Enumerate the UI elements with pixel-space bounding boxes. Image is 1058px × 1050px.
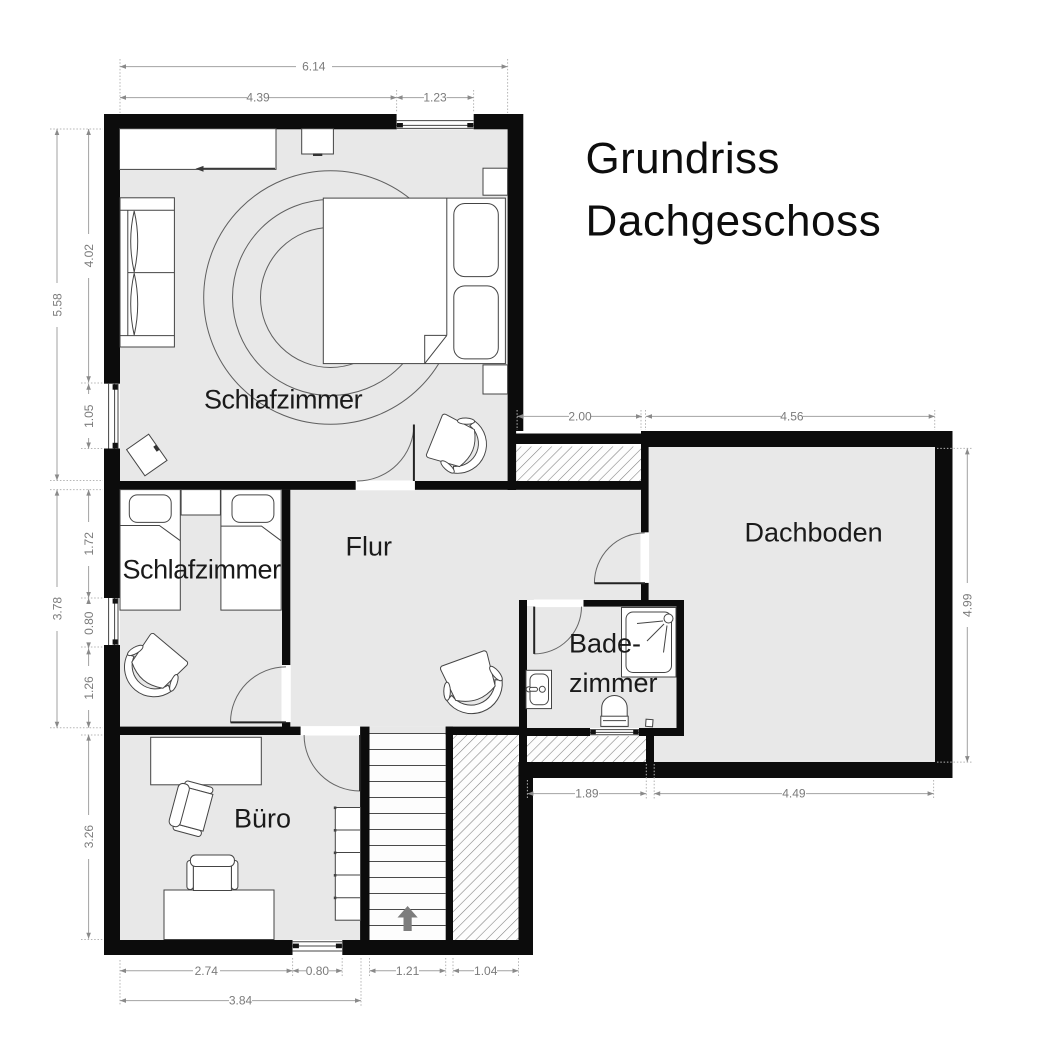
svg-text:Flur: Flur: [346, 532, 393, 562]
svg-text:4.56: 4.56: [780, 409, 804, 423]
svg-text:4.49: 4.49: [782, 787, 806, 801]
svg-text:3.26: 3.26: [82, 825, 96, 849]
svg-text:1.72: 1.72: [82, 532, 96, 556]
svg-text:zimmer: zimmer: [569, 668, 658, 698]
svg-text:1.04: 1.04: [474, 964, 498, 978]
svg-text:1.26: 1.26: [82, 676, 96, 700]
svg-text:5.58: 5.58: [50, 293, 64, 317]
svg-text:Dachgeschoss: Dachgeschoss: [586, 196, 882, 245]
svg-text:4.02: 4.02: [82, 244, 96, 268]
svg-text:3.84: 3.84: [229, 994, 253, 1008]
svg-text:4.99: 4.99: [961, 593, 975, 617]
svg-text:Grundriss: Grundriss: [586, 134, 780, 183]
svg-text:Dachboden: Dachboden: [745, 517, 883, 547]
svg-text:Schlafzimmer: Schlafzimmer: [123, 555, 282, 585]
svg-text:1.23: 1.23: [423, 91, 447, 105]
svg-text:1.05: 1.05: [82, 404, 96, 428]
svg-text:Büro: Büro: [234, 804, 291, 834]
svg-text:3.78: 3.78: [50, 597, 64, 621]
svg-text:1.21: 1.21: [396, 964, 420, 978]
svg-text:Schlafzimmer: Schlafzimmer: [204, 385, 363, 415]
svg-text:1.89: 1.89: [575, 787, 599, 801]
svg-text:2.74: 2.74: [195, 964, 219, 978]
svg-text:0.80: 0.80: [82, 611, 96, 635]
svg-text:2.00: 2.00: [568, 409, 592, 423]
svg-text:Bade-: Bade-: [569, 628, 641, 658]
svg-text:4.39: 4.39: [246, 91, 270, 105]
svg-text:0.80: 0.80: [306, 964, 330, 978]
svg-text:6.14: 6.14: [302, 60, 326, 74]
